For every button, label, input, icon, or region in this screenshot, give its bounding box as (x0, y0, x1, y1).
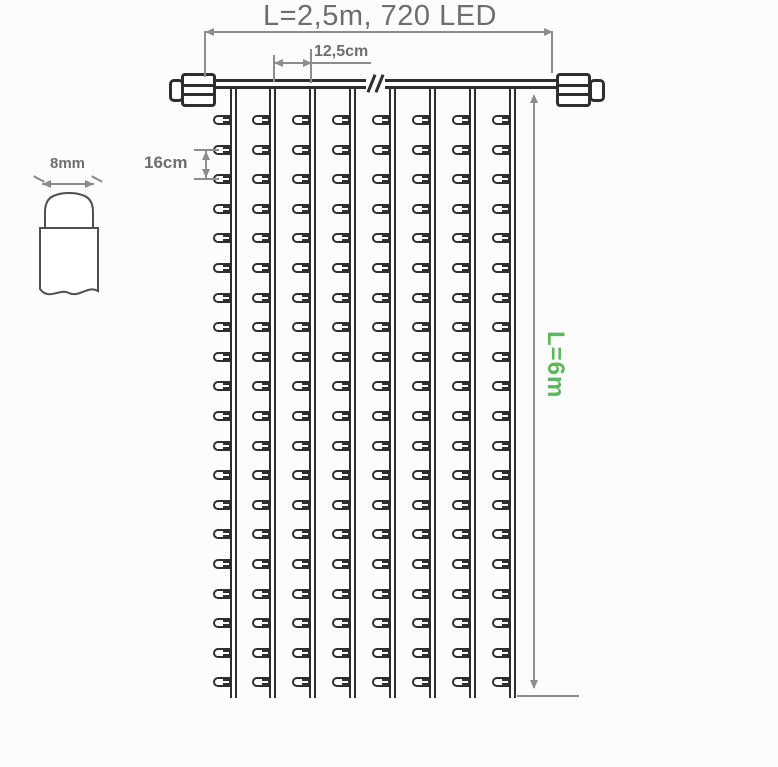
led-bulb (452, 470, 471, 480)
led-bulb (332, 263, 351, 273)
led-bulb (452, 322, 471, 332)
arrow-up-icon (530, 94, 538, 103)
led-bulb (292, 411, 311, 421)
connector-rib (184, 93, 213, 96)
led-bulb (492, 233, 511, 243)
led-bulb (452, 559, 471, 569)
led-bulb (332, 352, 351, 362)
led-bulb (412, 648, 431, 658)
arrow-left-icon (205, 28, 214, 36)
left-connector-plug (181, 73, 216, 107)
led-bulb (372, 470, 391, 480)
led-bulb (332, 233, 351, 243)
led-bulb (292, 233, 311, 243)
led-bulb (372, 174, 391, 184)
led-bulb (372, 500, 391, 510)
led-bulb (452, 263, 471, 273)
led-bulb (412, 677, 431, 687)
led-bulb (213, 500, 232, 510)
led-bulb (292, 322, 311, 332)
led-bulb (492, 618, 511, 628)
extension-line (310, 49, 312, 83)
led-bulb (452, 441, 471, 451)
led-bulb (213, 381, 232, 391)
led-bulb (292, 293, 311, 303)
led-bulb (332, 322, 351, 332)
led-bulb (492, 589, 511, 599)
led-bulb (372, 293, 391, 303)
led-bulb (372, 648, 391, 658)
led-bulb (292, 559, 311, 569)
led-bulb (252, 174, 271, 184)
led-bulb (372, 233, 391, 243)
led-bulb (372, 352, 391, 362)
led-bulb (252, 648, 271, 658)
led-bulb (372, 411, 391, 421)
led-bulb (213, 470, 232, 480)
led-bulb (252, 293, 271, 303)
led-bulb (213, 293, 232, 303)
spacing-dimension-line (274, 62, 371, 64)
led-bulb (292, 263, 311, 273)
led-bulb (292, 470, 311, 480)
bulb-body-shape (40, 228, 98, 294)
led-spacing-label: 16cm (144, 153, 187, 173)
led-bulb (372, 204, 391, 214)
led-bulb (252, 115, 271, 125)
led-bulb (492, 352, 511, 362)
led-bulb (213, 352, 232, 362)
led-bulb (252, 559, 271, 569)
led-bulb (332, 529, 351, 539)
led-bulb (332, 648, 351, 658)
led-bulb (332, 441, 351, 451)
led-bulb (332, 381, 351, 391)
extension-line (194, 178, 219, 180)
led-bulb (372, 529, 391, 539)
led-bulb (412, 589, 431, 599)
led-bulb (492, 677, 511, 687)
led-bulb (492, 648, 511, 658)
curtain-strands (0, 0, 778, 767)
arrow-left-icon (274, 59, 283, 67)
extension-line (517, 695, 579, 697)
led-bulb (492, 263, 511, 273)
led-bulb (492, 500, 511, 510)
led-bulb (412, 204, 431, 214)
led-bulb (213, 233, 232, 243)
led-bulb (492, 204, 511, 214)
led-bulb (252, 441, 271, 451)
led-bulb (372, 322, 391, 332)
led-bulb (452, 174, 471, 184)
led-bulb (213, 648, 232, 658)
led-bulb (252, 677, 271, 687)
led-bulb (492, 115, 511, 125)
led-bulb (452, 352, 471, 362)
led-bulb (412, 559, 431, 569)
led-bulb (252, 470, 271, 480)
led-bulb (412, 470, 431, 480)
led-bulb (412, 411, 431, 421)
led-bulb (332, 293, 351, 303)
led-bulb (213, 411, 232, 421)
led-bulb (213, 618, 232, 628)
led-bulb (213, 322, 232, 332)
arrow-down-icon (202, 169, 210, 178)
led-bulb (412, 174, 431, 184)
led-curtain-diagram: L=2,5m, 720 LED 12,5cm 16cm L=6m (0, 0, 778, 767)
led-bulb (372, 115, 391, 125)
led-bulb (332, 470, 351, 480)
led-bulb (332, 559, 351, 569)
led-bulb (452, 648, 471, 658)
led-bulb (412, 352, 431, 362)
led-bulb (252, 529, 271, 539)
led-bulb (452, 115, 471, 125)
led-bulb (252, 263, 271, 273)
led-bulb (412, 322, 431, 332)
led-bulb (332, 411, 351, 421)
led-bulb (213, 441, 232, 451)
strand-spacing-label: 12,5cm (314, 43, 368, 61)
led-bulb (372, 677, 391, 687)
led-bulb (452, 233, 471, 243)
led-bulb (252, 204, 271, 214)
bulb-width-label: 8mm (50, 155, 85, 172)
extension-line (273, 55, 275, 82)
led-bulb (252, 411, 271, 421)
connector-rib (184, 84, 213, 87)
led-bulb (412, 233, 431, 243)
arrow-right-icon (85, 180, 94, 188)
led-bulb (452, 589, 471, 599)
led-bulb (372, 589, 391, 599)
led-bulb (292, 204, 311, 214)
drop-dimension-line (533, 96, 535, 688)
led-bulb (492, 441, 511, 451)
led-bulb (452, 381, 471, 391)
led-bulb (452, 145, 471, 155)
led-bulb (332, 500, 351, 510)
led-bulb (492, 322, 511, 332)
led-bulb (292, 441, 311, 451)
led-bulb (332, 618, 351, 628)
led-bulb (412, 618, 431, 628)
led-bulb (412, 381, 431, 391)
led-bulb (372, 145, 391, 155)
led-bulb (332, 677, 351, 687)
led-bulb (213, 204, 232, 214)
led-bulb (492, 145, 511, 155)
led-bulb (252, 618, 271, 628)
led-bulb (412, 500, 431, 510)
connector-rib (559, 84, 588, 87)
led-bulb (492, 411, 511, 421)
led-bulb (213, 677, 232, 687)
led-bulb (492, 381, 511, 391)
extension-line (204, 31, 206, 77)
led-bulb (372, 618, 391, 628)
power-cable (213, 79, 561, 89)
led-bulb (252, 500, 271, 510)
led-bulb (213, 589, 232, 599)
led-bulb (292, 589, 311, 599)
top-dimension-line (205, 31, 553, 33)
right-connector-plug (556, 73, 591, 107)
led-bulb (412, 263, 431, 273)
drop-length-label: L=6m (541, 331, 569, 398)
led-bulb (292, 381, 311, 391)
arrow-down-icon (530, 680, 538, 689)
led-bulb (452, 204, 471, 214)
led-bulb (332, 589, 351, 599)
led-bulb (252, 145, 271, 155)
led-bulb (452, 618, 471, 628)
led-bulb (292, 529, 311, 539)
led-bulb (492, 293, 511, 303)
led-bulb (213, 263, 232, 273)
led-bulb (332, 204, 351, 214)
led-bulb (252, 352, 271, 362)
led-bulb (492, 470, 511, 480)
led-bulb (372, 559, 391, 569)
bulb-lens-shape (45, 193, 93, 228)
led-bulb (372, 381, 391, 391)
led-bulb (292, 352, 311, 362)
led-bulb (332, 115, 351, 125)
led-bulb (213, 115, 232, 125)
led-bulb (252, 233, 271, 243)
led-bulb (213, 529, 232, 539)
connector-rib (559, 93, 588, 96)
led-bulb (252, 322, 271, 332)
led-bulb (372, 441, 391, 451)
led-bulb (292, 677, 311, 687)
led-bulb (492, 529, 511, 539)
led-bulb (412, 441, 431, 451)
led-bulb (372, 263, 391, 273)
led-bulb (252, 589, 271, 599)
led-bulb (452, 677, 471, 687)
led-bulb (332, 174, 351, 184)
led-bulb (492, 559, 511, 569)
led-bulb (452, 411, 471, 421)
arrow-up-icon (202, 151, 210, 160)
led-bulb (292, 500, 311, 510)
led-bulb (452, 529, 471, 539)
led-bulb (252, 381, 271, 391)
led-bulb (412, 115, 431, 125)
bulb-detail-drawing (36, 188, 102, 312)
led-bulb (452, 293, 471, 303)
led-bulb (292, 115, 311, 125)
led-bulb (292, 648, 311, 658)
led-bulb (292, 145, 311, 155)
led-bulb (213, 559, 232, 569)
led-bulb (292, 174, 311, 184)
led-bulb (412, 293, 431, 303)
led-bulb (412, 529, 431, 539)
led-bulb (492, 174, 511, 184)
led-bulb (452, 500, 471, 510)
led-bulb (412, 145, 431, 155)
extension-line (551, 31, 553, 73)
led-bulb (292, 618, 311, 628)
led-bulb (332, 145, 351, 155)
